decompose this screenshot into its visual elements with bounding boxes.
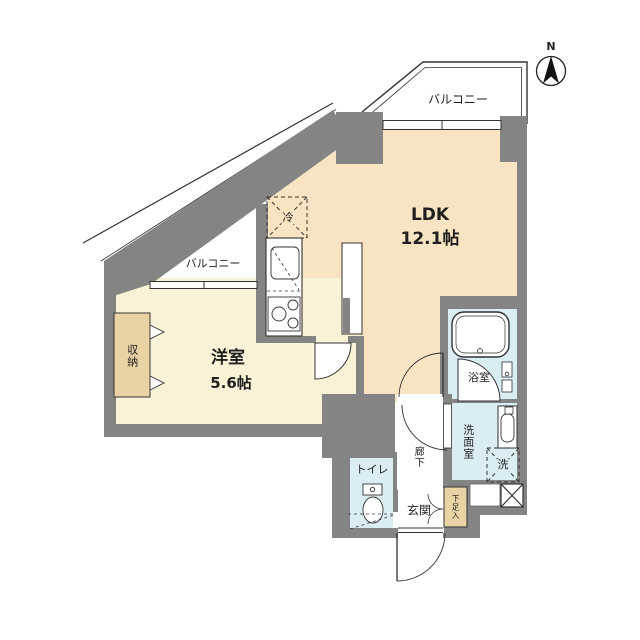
kitchen-sink xyxy=(271,247,299,279)
storage-label: 収納 xyxy=(126,344,138,368)
entrance-label: 玄関 xyxy=(407,505,431,518)
stove xyxy=(268,297,300,331)
hallway-label: 廊下 xyxy=(412,446,423,468)
compass-icon xyxy=(537,56,566,86)
bathroom-fixture xyxy=(502,362,512,392)
toilet-fixture xyxy=(363,484,383,523)
pipe-space xyxy=(501,484,523,507)
washroom-label: 洗面室 xyxy=(462,424,474,460)
western-room-window xyxy=(150,281,257,289)
washbasin xyxy=(498,406,517,448)
washer-label: 洗 xyxy=(497,459,510,471)
ldk-size-label: 12.1帖 xyxy=(401,231,460,249)
floor-plan: バルコニー バルコニー LDK 12.1帖 洋室 5.6帖 収納 冷 浴室 洗面… xyxy=(0,0,640,640)
hallway-floor xyxy=(397,394,443,490)
bathroom-label: 浴室 xyxy=(468,372,490,384)
western-room-label: 洋室 xyxy=(211,350,245,368)
bathtub xyxy=(452,312,509,357)
kitchen-partition xyxy=(342,243,362,334)
ldk-balcony-window xyxy=(383,120,501,130)
western-room-size-label: 5.6帖 xyxy=(210,376,252,392)
floor-plan-canvas xyxy=(0,0,640,640)
compass-north-label: N xyxy=(546,41,555,53)
kitchen-counter xyxy=(266,238,302,336)
refrigerator-label: 冷 xyxy=(282,212,295,224)
utility-box xyxy=(470,484,500,506)
entrance-door xyxy=(397,533,445,581)
shoe-box-label: 下足入 xyxy=(451,494,459,520)
toilet-door-opening xyxy=(393,512,398,528)
toilet-label: トイレ xyxy=(356,464,389,476)
balcony-left-label: バルコニー xyxy=(186,258,241,270)
ldk-label: LDK xyxy=(411,207,449,225)
balcony-top-label: バルコニー xyxy=(428,94,488,107)
